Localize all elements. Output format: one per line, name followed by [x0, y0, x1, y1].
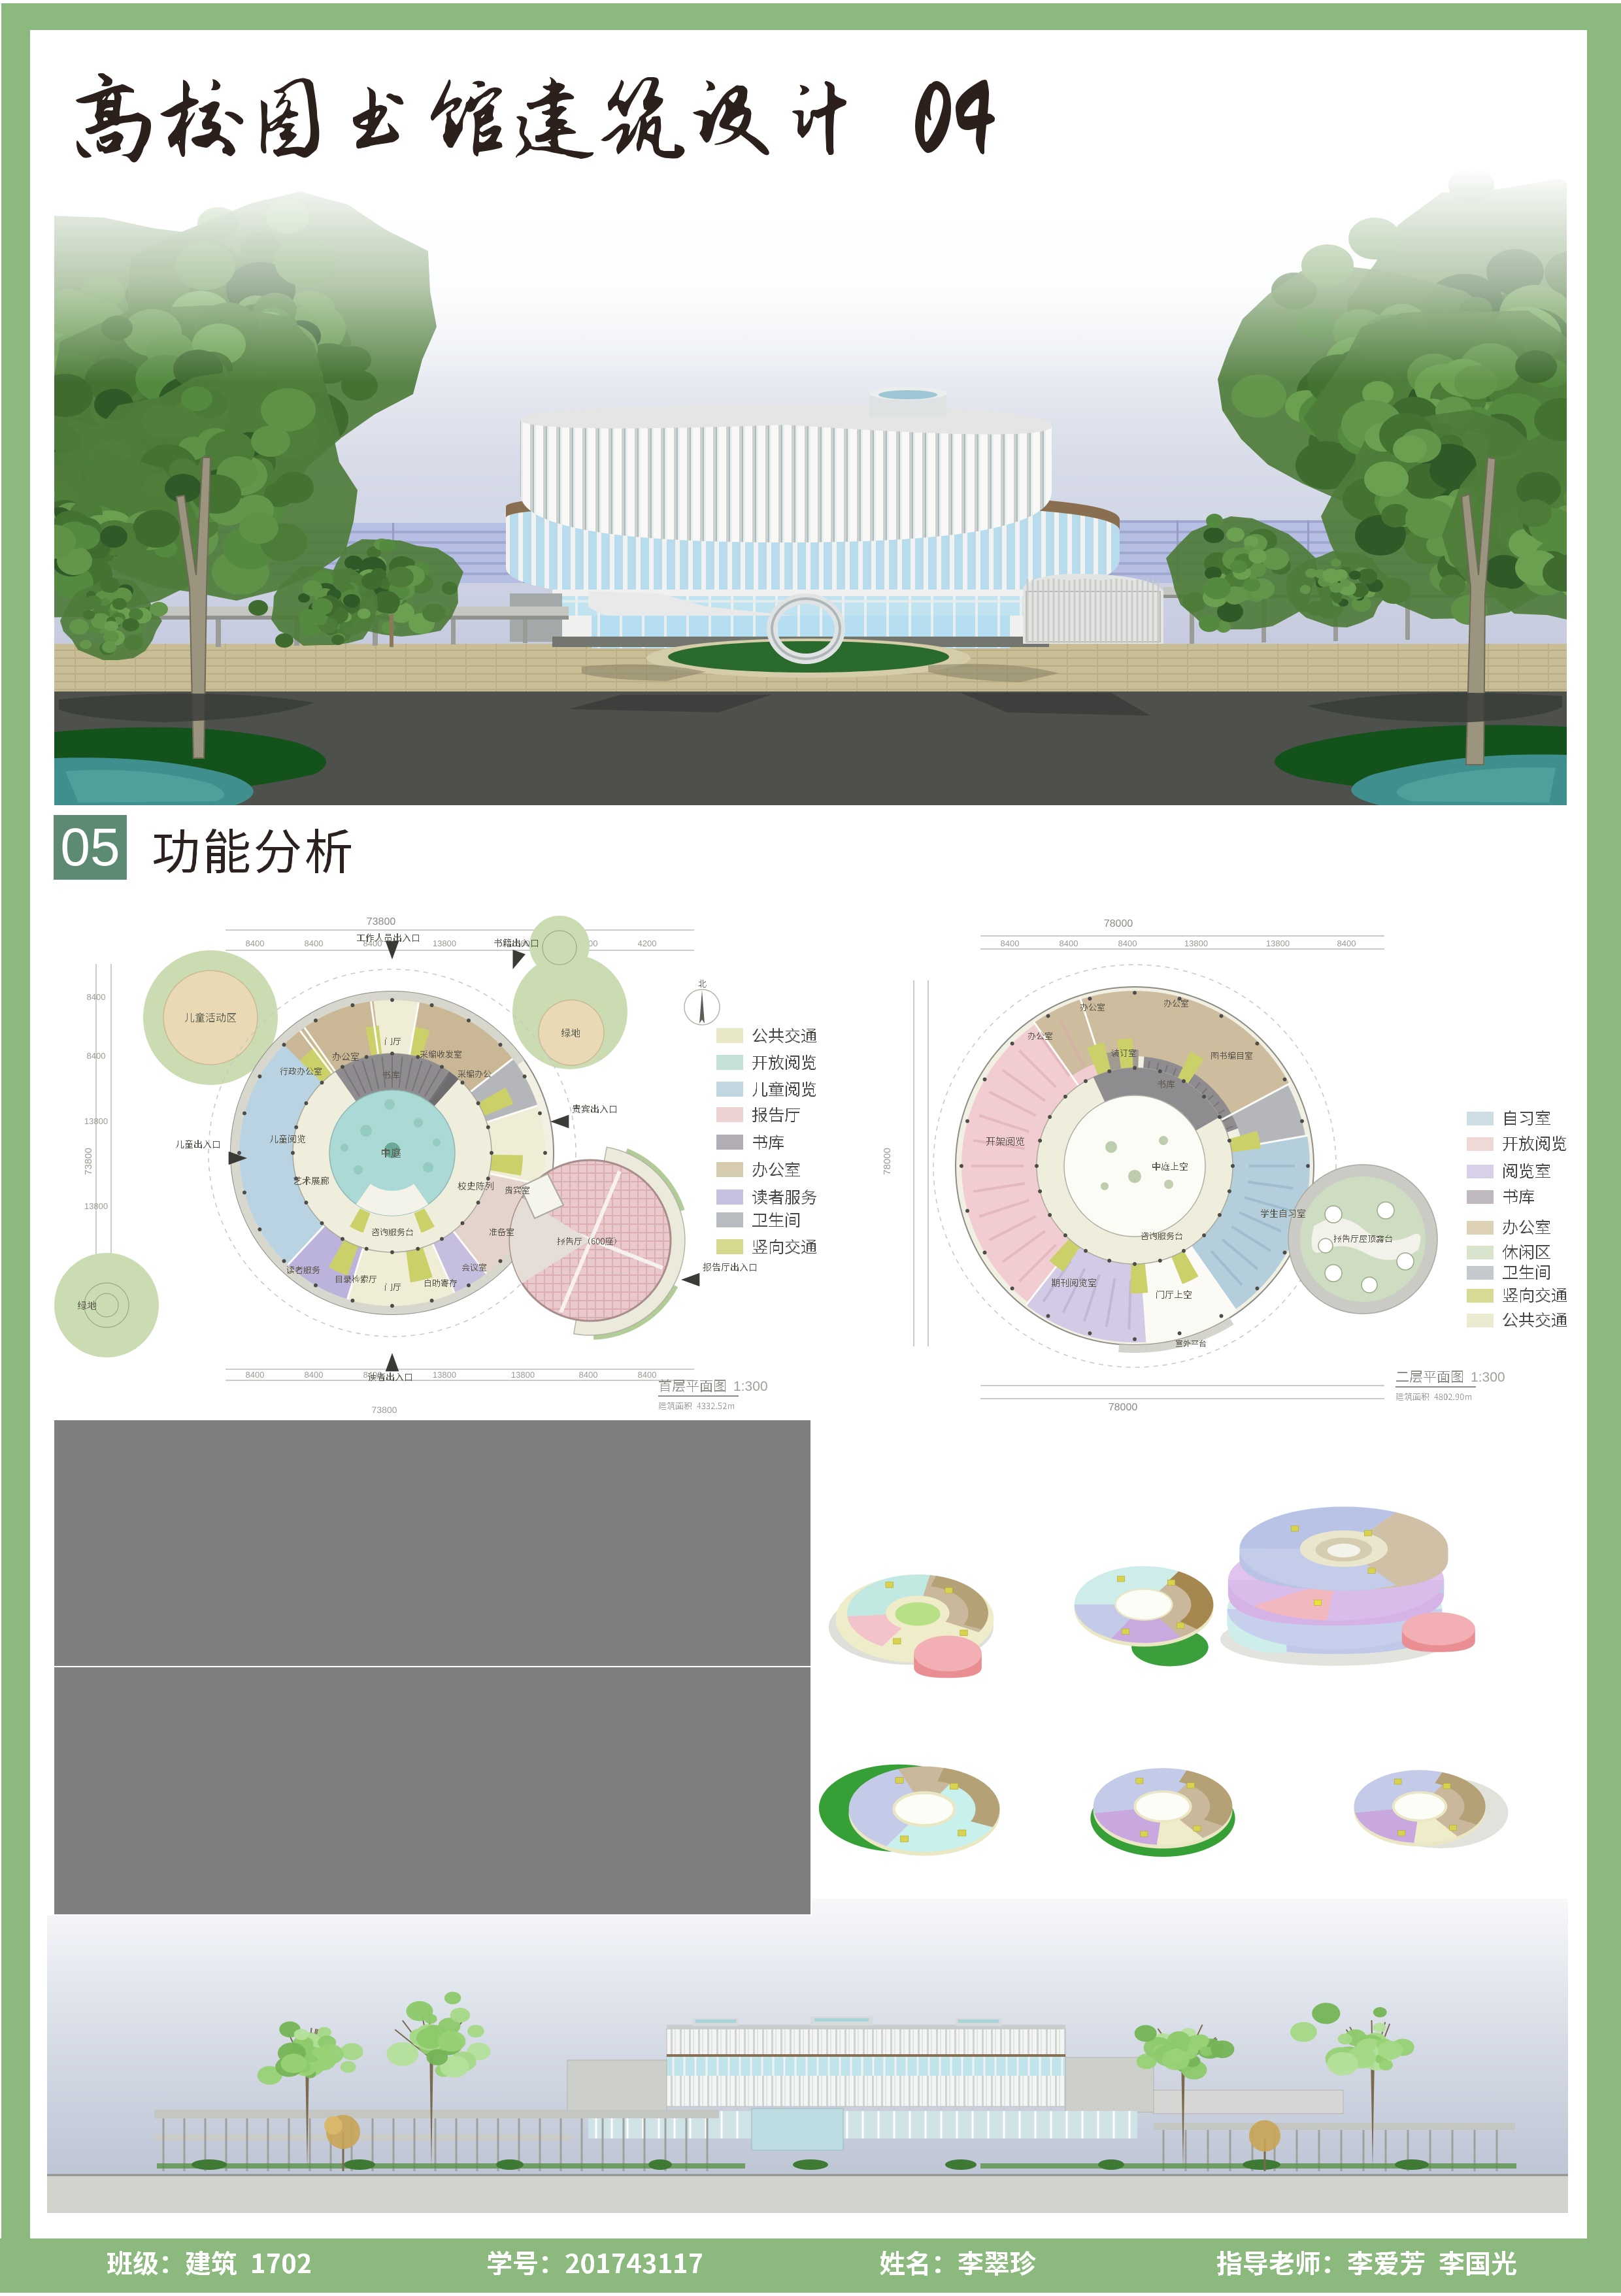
svg-text:13800: 13800	[511, 1370, 535, 1380]
svg-text:8400: 8400	[638, 1370, 657, 1380]
svg-text:8400: 8400	[305, 939, 324, 948]
svg-text:78000: 78000	[1104, 918, 1133, 929]
svg-text:78000: 78000	[1109, 1402, 1138, 1413]
svg-text:78000: 78000	[882, 1148, 893, 1175]
svg-text:1:300: 1:300	[733, 1379, 768, 1394]
svg-text:8400: 8400	[363, 939, 382, 948]
svg-text:13800: 13800	[1266, 939, 1290, 948]
svg-text:8400: 8400	[1337, 939, 1356, 948]
svg-text:8400: 8400	[87, 1051, 106, 1061]
svg-text:8400: 8400	[1060, 939, 1078, 948]
svg-text:8400: 8400	[1001, 939, 1020, 948]
svg-text:13800: 13800	[1184, 939, 1208, 948]
svg-text:05: 05	[60, 818, 120, 877]
svg-text:8400: 8400	[246, 939, 265, 948]
svg-text:4200: 4200	[638, 939, 657, 948]
svg-text:13800: 13800	[433, 939, 456, 948]
svg-text:8400: 8400	[246, 1370, 265, 1380]
svg-text:73800: 73800	[367, 916, 396, 927]
svg-text:73800: 73800	[372, 1405, 397, 1415]
svg-text:1:300: 1:300	[1471, 1370, 1505, 1385]
svg-text:8400: 8400	[1118, 939, 1137, 948]
svg-text:8400: 8400	[579, 1370, 598, 1380]
svg-text:8400: 8400	[305, 1370, 324, 1380]
svg-text:73800: 73800	[83, 1148, 94, 1175]
svg-text:13800: 13800	[433, 1370, 456, 1380]
svg-text:8400: 8400	[87, 992, 106, 1002]
svg-text:13800: 13800	[84, 1201, 108, 1211]
svg-text:13800: 13800	[84, 1116, 108, 1126]
